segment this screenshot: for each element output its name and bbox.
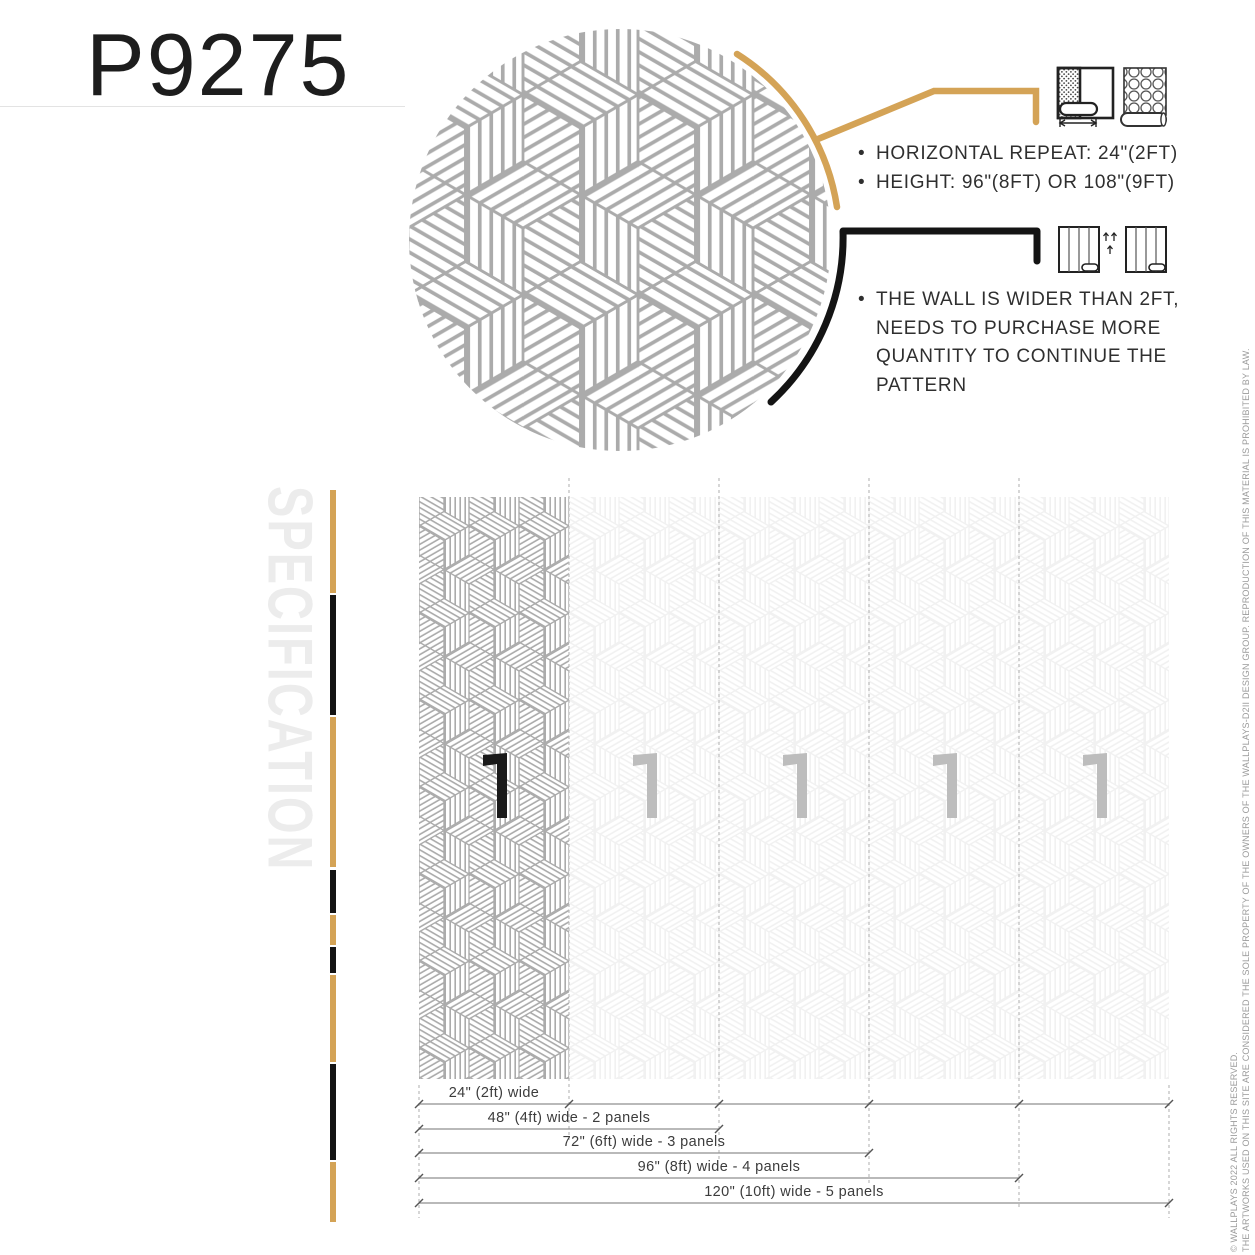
spec-sheet: P9275 •HORIZONTAL REPEAT: 24"(2FT)•HE <box>0 0 1255 1255</box>
dimension-label: 72" (6ft) wide - 3 panels <box>534 1134 754 1150</box>
dimension-label: 120" (10ft) wide - 5 panels <box>684 1184 904 1200</box>
dimension-label: 48" (4ft) wide - 2 panels <box>459 1110 679 1126</box>
dimension-label: 96" (8ft) wide - 4 panels <box>609 1159 829 1175</box>
dimension-overlay <box>0 0 1255 1255</box>
dimension-label: 24" (2ft) wide <box>384 1085 604 1101</box>
